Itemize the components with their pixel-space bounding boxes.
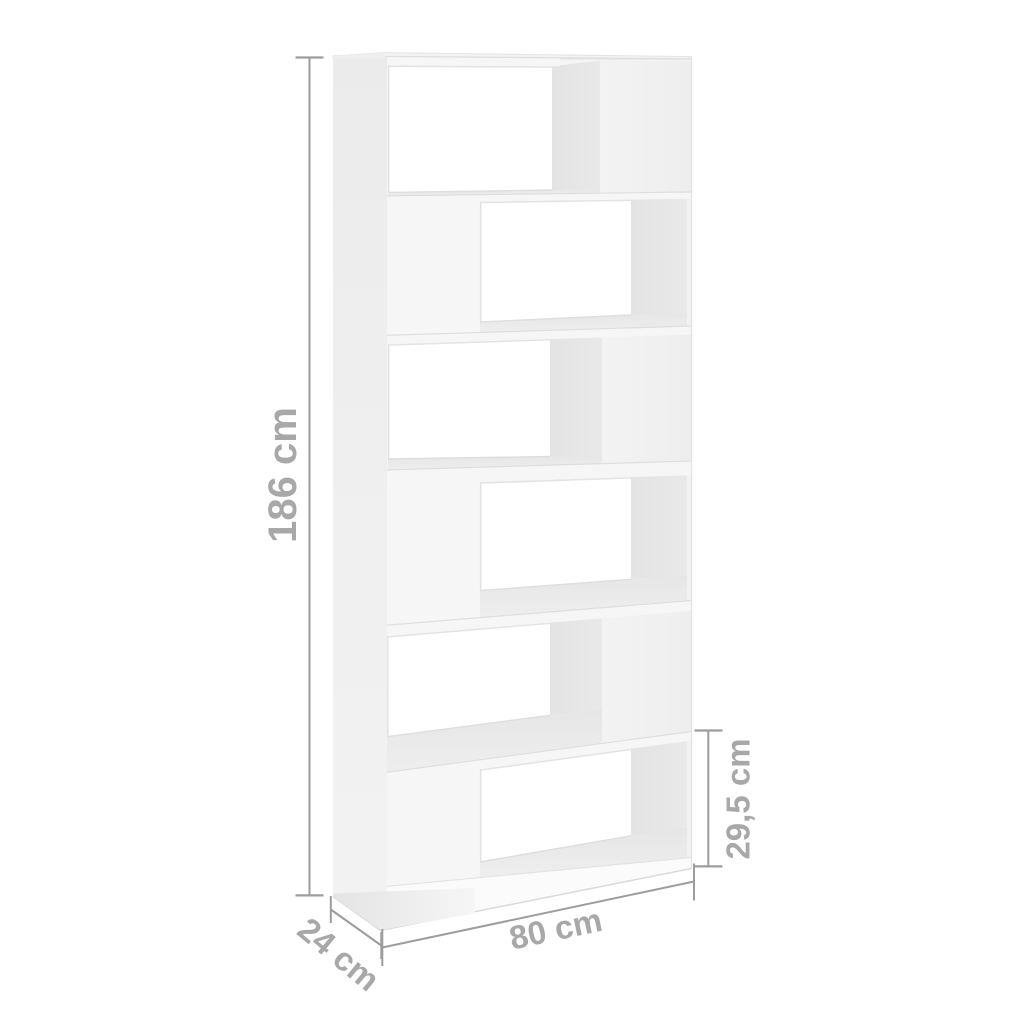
svg-text:186 cm: 186 cm <box>261 407 305 543</box>
svg-text:29,5 cm: 29,5 cm <box>720 738 757 859</box>
